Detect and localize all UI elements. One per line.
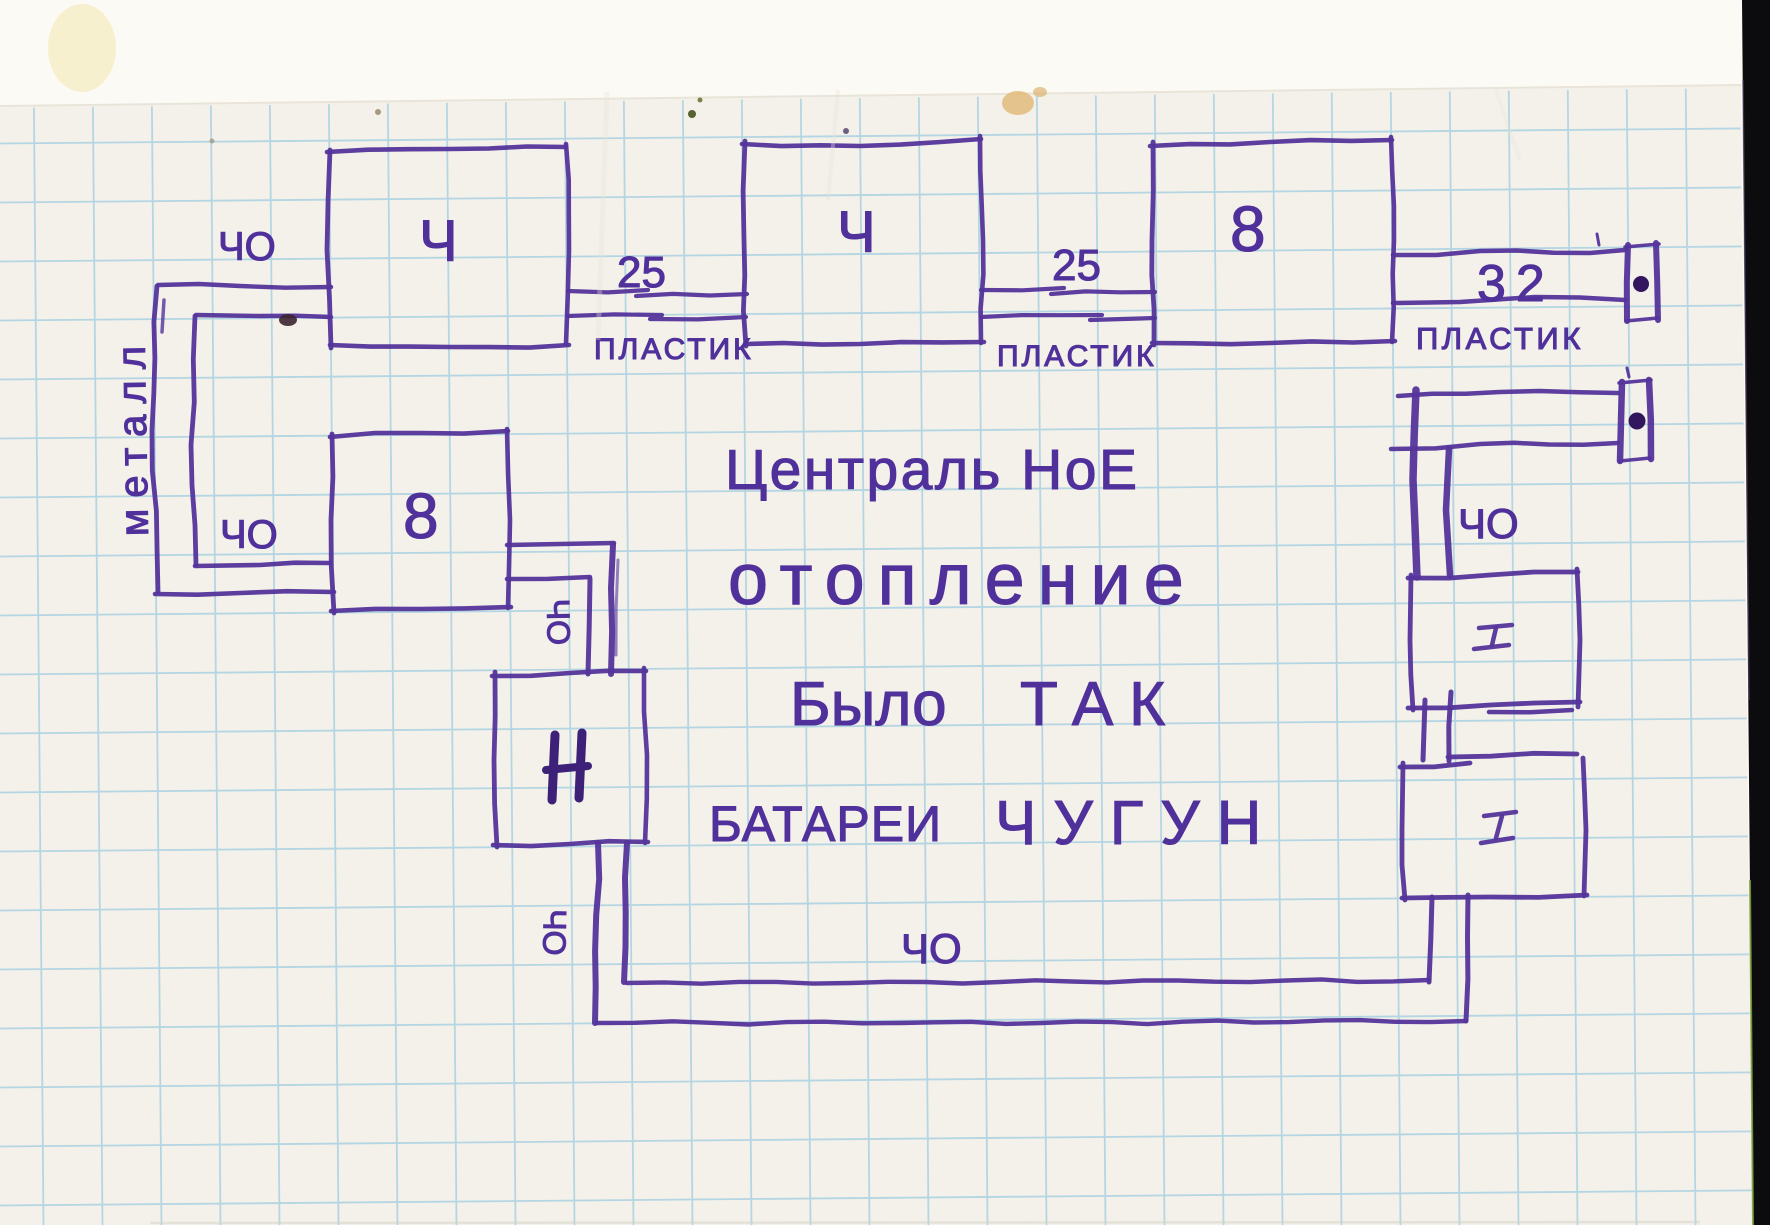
- svg-text:ТАК: ТАК: [1020, 670, 1181, 739]
- svg-text:32: 32: [1477, 255, 1555, 313]
- svg-text:8: 8: [1230, 193, 1266, 265]
- svg-text:металл: металл: [109, 335, 157, 537]
- svg-text:ЧО: ЧО: [218, 225, 276, 269]
- svg-text:Ч: Ч: [419, 209, 458, 274]
- svg-text:ПЛАСТИК: ПЛАСТИК: [1416, 321, 1584, 356]
- svg-text:БАТАРЕИ: БАТАРЕИ: [709, 796, 942, 852]
- svg-text:8: 8: [403, 480, 439, 552]
- svg-text:Централь НоЕ: Централь НоЕ: [725, 438, 1140, 502]
- svg-text:25: 25: [617, 248, 666, 297]
- svg-text:отопление: отопление: [728, 540, 1197, 620]
- svg-text:ЧО: ЧО: [901, 925, 962, 972]
- svg-text:25: 25: [1052, 241, 1101, 290]
- svg-text:ЧО: ЧО: [540, 598, 577, 645]
- svg-text:ЧО: ЧО: [220, 513, 278, 557]
- svg-text:ЧО: ЧО: [536, 909, 573, 956]
- svg-text:ПЛАСТИК: ПЛАСТИК: [997, 340, 1157, 373]
- svg-text:Было: Было: [790, 670, 947, 739]
- svg-text:Ч: Ч: [837, 200, 876, 265]
- svg-text:ЧО: ЧО: [1458, 500, 1519, 547]
- svg-text:ПЛАСТИК: ПЛАСТИК: [594, 333, 754, 366]
- svg-text:ЧУГУН: ЧУГУН: [995, 789, 1278, 858]
